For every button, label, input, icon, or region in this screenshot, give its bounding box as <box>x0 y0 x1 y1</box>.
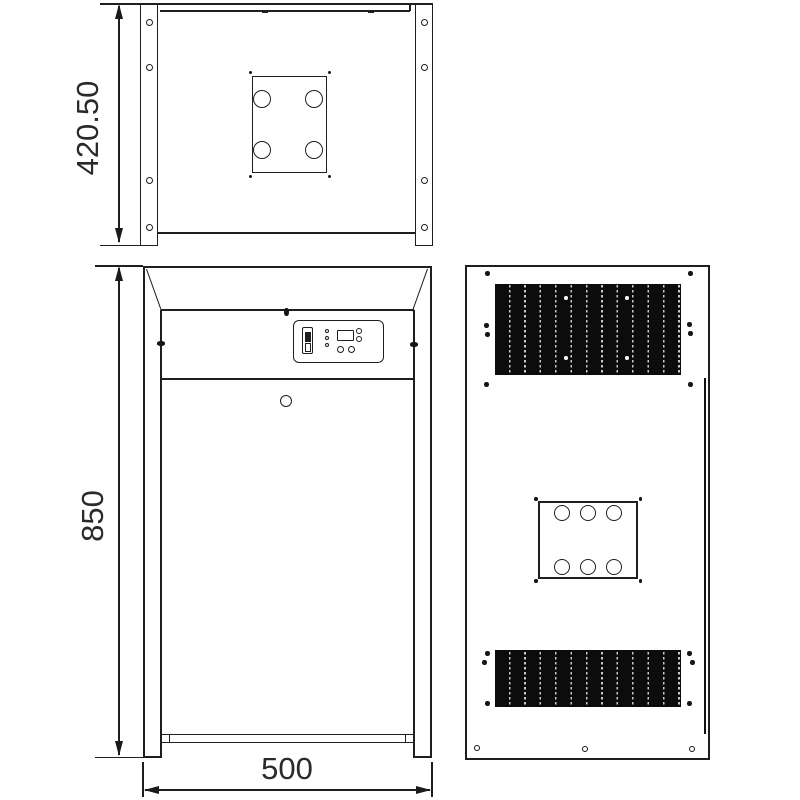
panel-screw <box>485 271 490 276</box>
front-view-outline <box>143 266 432 758</box>
dim-height-extension-bottom <box>95 757 143 759</box>
base-screw <box>689 746 695 752</box>
panel-screw <box>485 651 490 656</box>
screw-side-right <box>410 342 418 347</box>
dim-width-extension-right <box>431 762 433 797</box>
flange-hole <box>421 177 428 184</box>
display-window <box>337 330 354 341</box>
panel-screw <box>690 660 695 665</box>
top-view-bottom-edge <box>158 232 415 234</box>
dim-height-line <box>118 268 120 755</box>
panel-screw <box>688 271 693 276</box>
cutout-hole <box>305 90 323 108</box>
power-switch-top-segment <box>305 332 311 342</box>
screw-top-center <box>284 308 289 316</box>
top-edge-clip-mark <box>368 10 374 13</box>
cutout-hole <box>253 141 271 159</box>
cutout-hole <box>305 141 323 159</box>
panel-screw <box>482 660 487 665</box>
base-screw <box>582 746 588 752</box>
door-knob <box>280 395 292 407</box>
dim-arrow-down <box>115 228 123 243</box>
door-seam-line <box>704 378 706 734</box>
corner-screw-mark <box>249 71 252 74</box>
corner-screw-mark <box>534 579 538 583</box>
panel-button <box>348 346 355 353</box>
corner-screw-mark <box>328 175 331 178</box>
panel-screw <box>688 331 693 336</box>
mounting-flange-left <box>140 3 158 246</box>
flange-hole <box>421 224 428 231</box>
flange-hole <box>146 64 153 71</box>
dim-arrow-up <box>115 4 123 19</box>
power-switch-bottom-segment <box>305 343 311 352</box>
technical-drawing-canvas: 420.50 <box>0 0 800 800</box>
grille-rivet <box>625 296 629 300</box>
corner-screw-mark <box>534 497 538 501</box>
top-edge-clip-mark <box>262 10 268 13</box>
corner-screw-mark <box>249 175 252 178</box>
dim-arrow-up <box>115 266 123 281</box>
gland-hole <box>580 559 596 575</box>
corner-screw-mark <box>328 71 331 74</box>
dim-width-line <box>145 789 430 791</box>
panel-screw <box>485 701 490 706</box>
top-view-top-edge <box>140 3 433 5</box>
leg-cap-left <box>143 756 162 758</box>
panel-screw <box>687 701 692 706</box>
flange-hole <box>421 19 428 26</box>
strip-tick <box>169 734 170 743</box>
corner-screw-mark <box>639 579 643 583</box>
door-bottom-strip <box>161 734 414 743</box>
leg-cap-right <box>413 756 432 758</box>
panel-screw <box>687 651 692 656</box>
gland-hole <box>554 505 570 521</box>
grille-rivet <box>564 296 568 300</box>
panel-screw <box>485 332 490 337</box>
mounting-flange-right <box>415 3 433 246</box>
gland-hole <box>580 505 596 521</box>
dim-height-label: 850 <box>75 456 111 576</box>
panel-screw <box>484 382 489 387</box>
grille-rivet <box>564 356 568 360</box>
screw-side-left <box>157 341 165 346</box>
vent-grille-bottom <box>495 650 681 707</box>
vent-grille-top <box>495 284 681 375</box>
panel-screw <box>688 382 693 387</box>
flange-hole <box>146 19 153 26</box>
dim-depth-extension-bottom <box>100 245 158 247</box>
panel-button <box>337 346 344 353</box>
dim-arrow-down <box>115 741 123 756</box>
flange-hole <box>146 224 153 231</box>
flange-hole <box>146 177 153 184</box>
base-screw <box>474 745 480 751</box>
panel-screw <box>484 323 489 328</box>
dim-depth-label: 420.50 <box>70 48 106 208</box>
corner-screw-mark <box>639 497 643 501</box>
dim-arrow-left <box>144 786 159 794</box>
gland-hole <box>606 505 622 521</box>
dim-arrow-right <box>416 786 431 794</box>
cutout-hole <box>253 90 271 108</box>
flange-hole <box>421 64 428 71</box>
dim-depth-line <box>118 6 120 242</box>
gland-hole <box>606 559 622 575</box>
panel-strip-bottom-line <box>161 378 414 380</box>
grille-rivet <box>625 356 629 360</box>
dim-width-label: 500 <box>245 753 329 787</box>
gland-hole <box>554 559 570 575</box>
strip-tick <box>405 734 406 743</box>
top-view-step-line <box>409 4 411 11</box>
panel-screw <box>687 322 692 327</box>
